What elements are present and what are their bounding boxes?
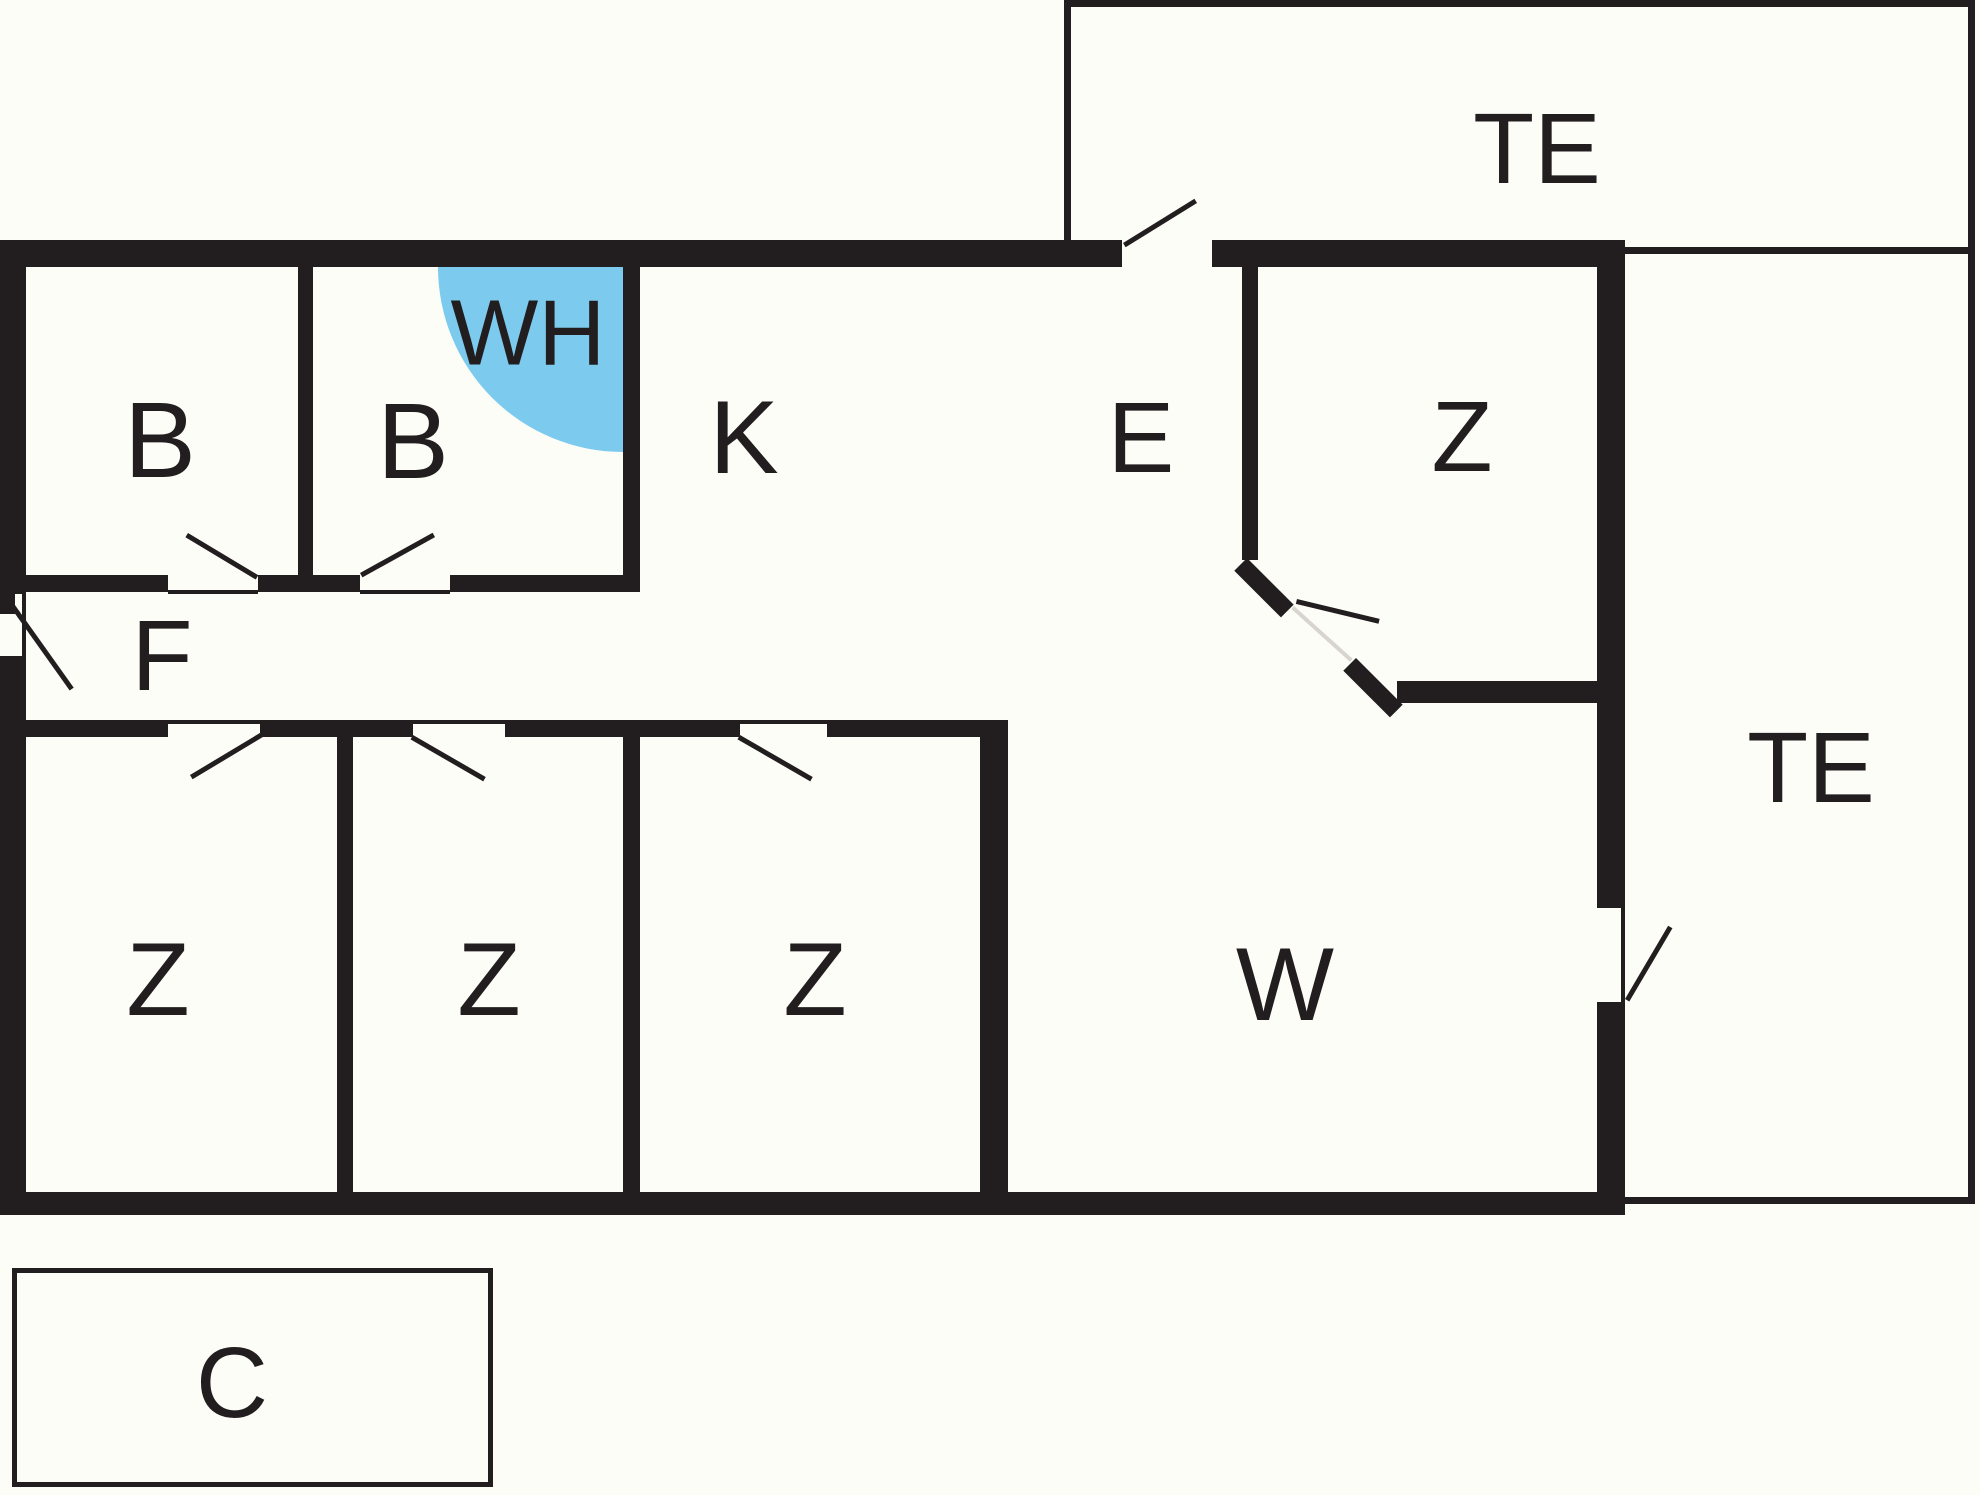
living-room-label: W xyxy=(1236,933,1334,1037)
hall-wall-segment-2 xyxy=(260,720,413,737)
bedroom3-door-swing xyxy=(738,735,813,781)
bedroom-upper-left-wall xyxy=(1242,267,1258,560)
bedroom1-2-divider xyxy=(337,737,353,1192)
bedroom3-right-wall xyxy=(980,720,1008,1192)
bath-wall-segment-2 xyxy=(258,575,360,592)
bath1-door-swing xyxy=(185,533,258,580)
terrace-right-border xyxy=(1968,0,1975,1204)
terrace-right-door-swing xyxy=(1625,926,1672,1002)
bedroom-upper-label: Z xyxy=(1431,387,1492,487)
exterior-wall-left-lower xyxy=(0,656,26,1215)
bedroom-2-label: Z xyxy=(457,928,521,1032)
bedroom-upper-angled-wall-1 xyxy=(1234,558,1293,617)
bedroom3-door-threshold xyxy=(740,720,827,724)
terrace-top-label: TE xyxy=(1473,99,1601,199)
terrace-right-border-bottom xyxy=(1625,1197,1975,1204)
bedroom-upper-angled-wall-2 xyxy=(1343,658,1402,717)
terrace-door-threshold xyxy=(1621,908,1625,1002)
floor-plan-canvas: TE TE B B WH K E Z F Z Z Z W C xyxy=(0,0,1980,1495)
bathroom-1-label: B xyxy=(124,386,196,494)
exterior-wall-top-right xyxy=(1212,240,1625,267)
entry-label: E xyxy=(1108,388,1175,488)
bath-divider-wall xyxy=(298,267,313,575)
terrace-divider-line xyxy=(1625,247,1968,254)
kitchen-label: K xyxy=(709,386,778,490)
exterior-wall-right-upper xyxy=(1597,263,1625,908)
exterior-wall-left-upper xyxy=(0,240,26,594)
exterior-wall-bottom xyxy=(0,1192,1625,1215)
bedroom-3-label: Z xyxy=(783,928,847,1032)
terrace-top-door-swing xyxy=(1123,199,1197,248)
hall-wall-segment-1 xyxy=(26,720,168,737)
bedroom1-door-threshold xyxy=(168,720,260,724)
water-heater-label: WH xyxy=(451,287,606,380)
bedroom1-door-swing xyxy=(190,733,263,780)
hallway-label: F xyxy=(131,606,192,706)
bedroom2-door-threshold xyxy=(413,720,505,724)
bath2-door-threshold xyxy=(360,590,450,594)
bedroom2-3-divider xyxy=(623,737,640,1192)
bath2-door-swing xyxy=(360,533,435,578)
exterior-wall-top-left xyxy=(0,240,1122,267)
bath2-right-wall xyxy=(623,267,640,592)
terrace-top-border-left xyxy=(1064,0,1071,240)
hall-wall-segment-3 xyxy=(505,720,740,737)
carport-label: C xyxy=(196,1333,268,1433)
terrace-top-border-top xyxy=(1064,0,1975,7)
bedroom2-door-swing xyxy=(411,735,486,781)
bath1-door-threshold xyxy=(168,590,258,594)
bath-wall-segment-3 xyxy=(450,575,640,592)
bathroom-2-label: B xyxy=(377,387,449,495)
bedroom-1-label: Z xyxy=(126,928,190,1032)
bath-wall-segment-1 xyxy=(26,575,168,592)
bedroom-upper-bottom-wall xyxy=(1397,681,1625,703)
terrace-right-label: TE xyxy=(1747,718,1875,818)
exterior-wall-right-lower xyxy=(1597,1002,1625,1215)
